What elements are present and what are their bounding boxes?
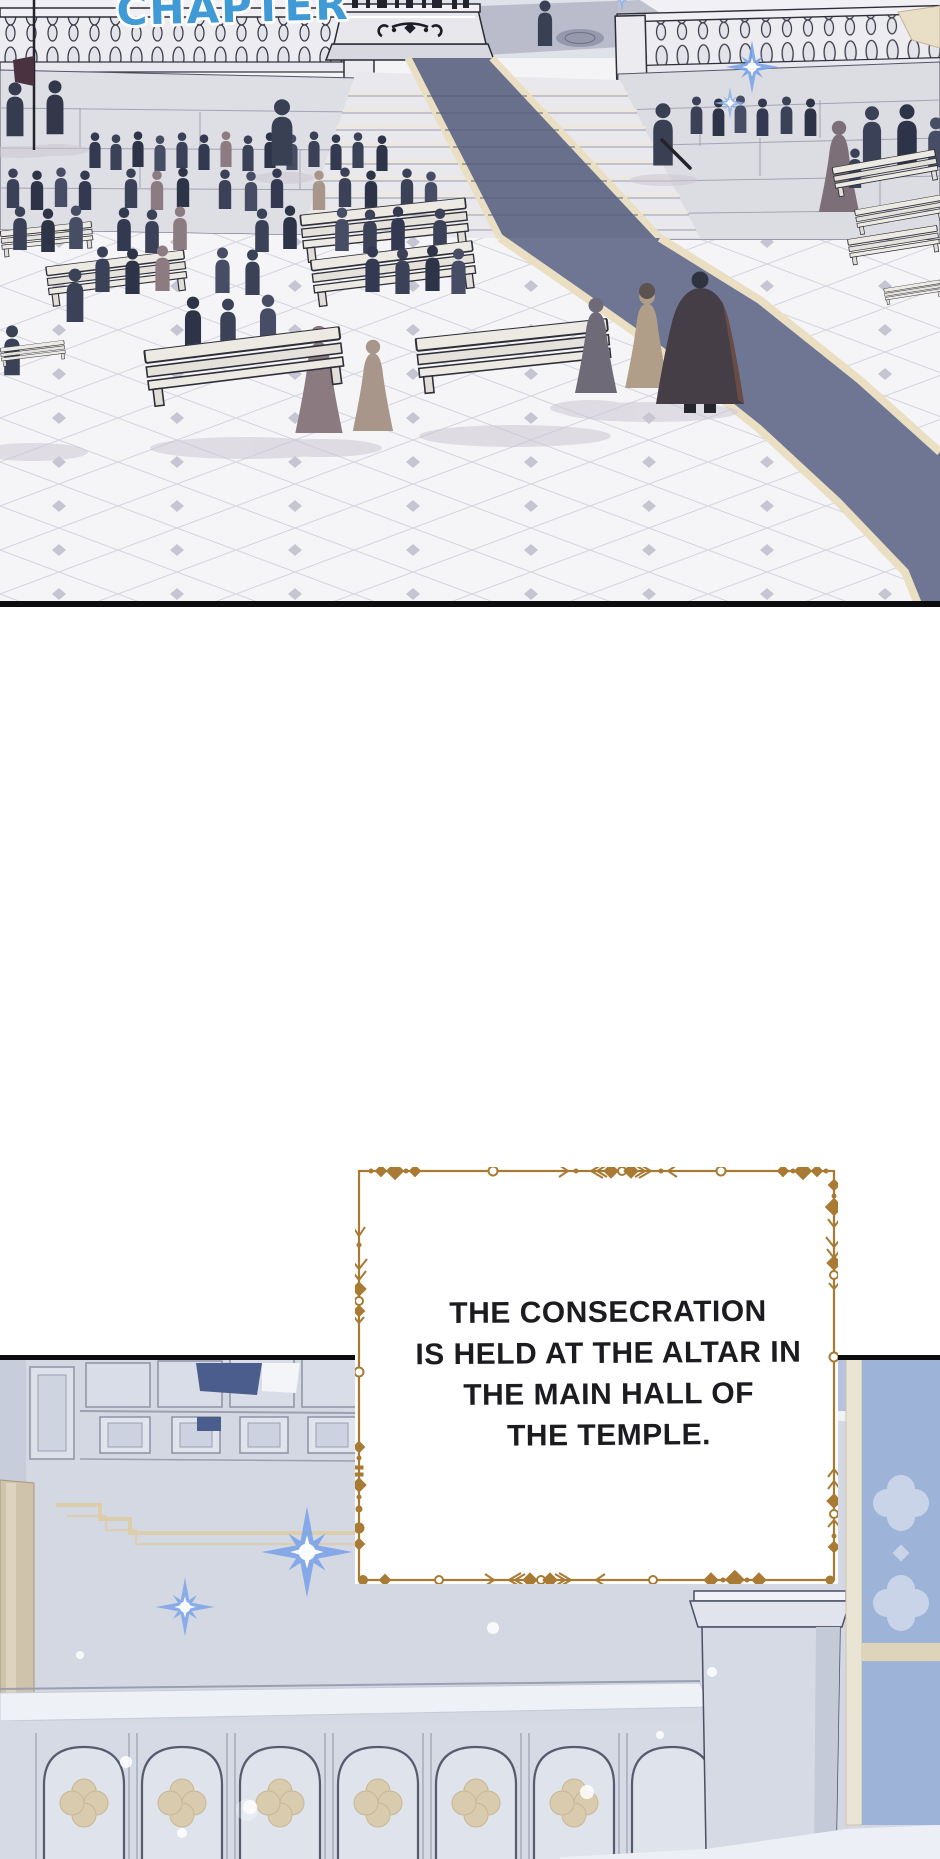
stone-pillar — [690, 1591, 850, 1851]
narration-line: THE MAIN HALL OF — [379, 1372, 838, 1416]
narration-box: THE CONSECRATION IS HELD AT THE ALTAR IN… — [355, 1167, 838, 1584]
terrace-attendant — [538, 1, 552, 46]
webtoon-page: CHAPTER — [0, 0, 940, 1859]
arched-arcade — [0, 1721, 712, 1859]
right-stained-column — [838, 1355, 940, 1825]
chapter-title: CHAPTER — [0, 0, 466, 29]
border-bottom-ornaments — [359, 1570, 835, 1584]
chapter-heading-clip: CHAPTER — [0, 0, 466, 29]
panel1-bottom-border — [0, 601, 940, 607]
narration-line: IS HELD AT THE ALTAR IN — [379, 1331, 838, 1375]
panel-plaza-scene — [0, 0, 940, 612]
curtain-highlight — [262, 1363, 300, 1393]
narration-line: THE TEMPLE. — [379, 1413, 838, 1457]
stained-glass-navy — [196, 1363, 262, 1395]
border-top-ornaments — [369, 1167, 828, 1179]
walking-figure — [272, 99, 293, 165]
narration-line: THE CONSECRATION — [378, 1290, 837, 1334]
narration-text: THE CONSECRATION IS HELD AT THE ALTAR IN… — [354, 1290, 838, 1457]
plaza-illustration — [0, 0, 940, 607]
